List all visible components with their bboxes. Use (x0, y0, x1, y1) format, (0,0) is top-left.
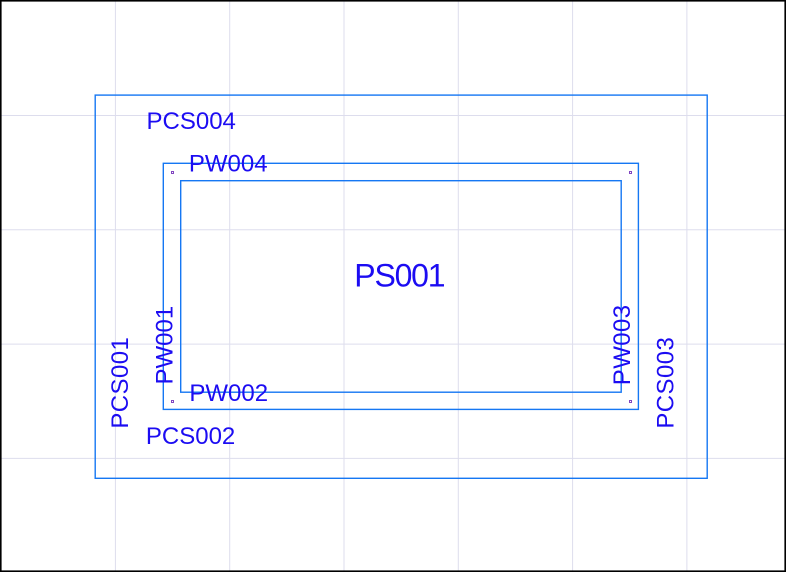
svg-text:PW002: PW002 (189, 380, 268, 407)
svg-text:PCS004: PCS004 (147, 108, 236, 135)
svg-text:PW004: PW004 (189, 151, 268, 178)
svg-text:PCS001: PCS001 (107, 337, 134, 429)
svg-text:PW001: PW001 (151, 306, 178, 385)
svg-text:PW003: PW003 (609, 304, 636, 385)
svg-text:PCS003: PCS003 (653, 337, 680, 429)
svg-text:PCS002: PCS002 (146, 423, 235, 450)
svg-text:PS001: PS001 (354, 257, 444, 293)
